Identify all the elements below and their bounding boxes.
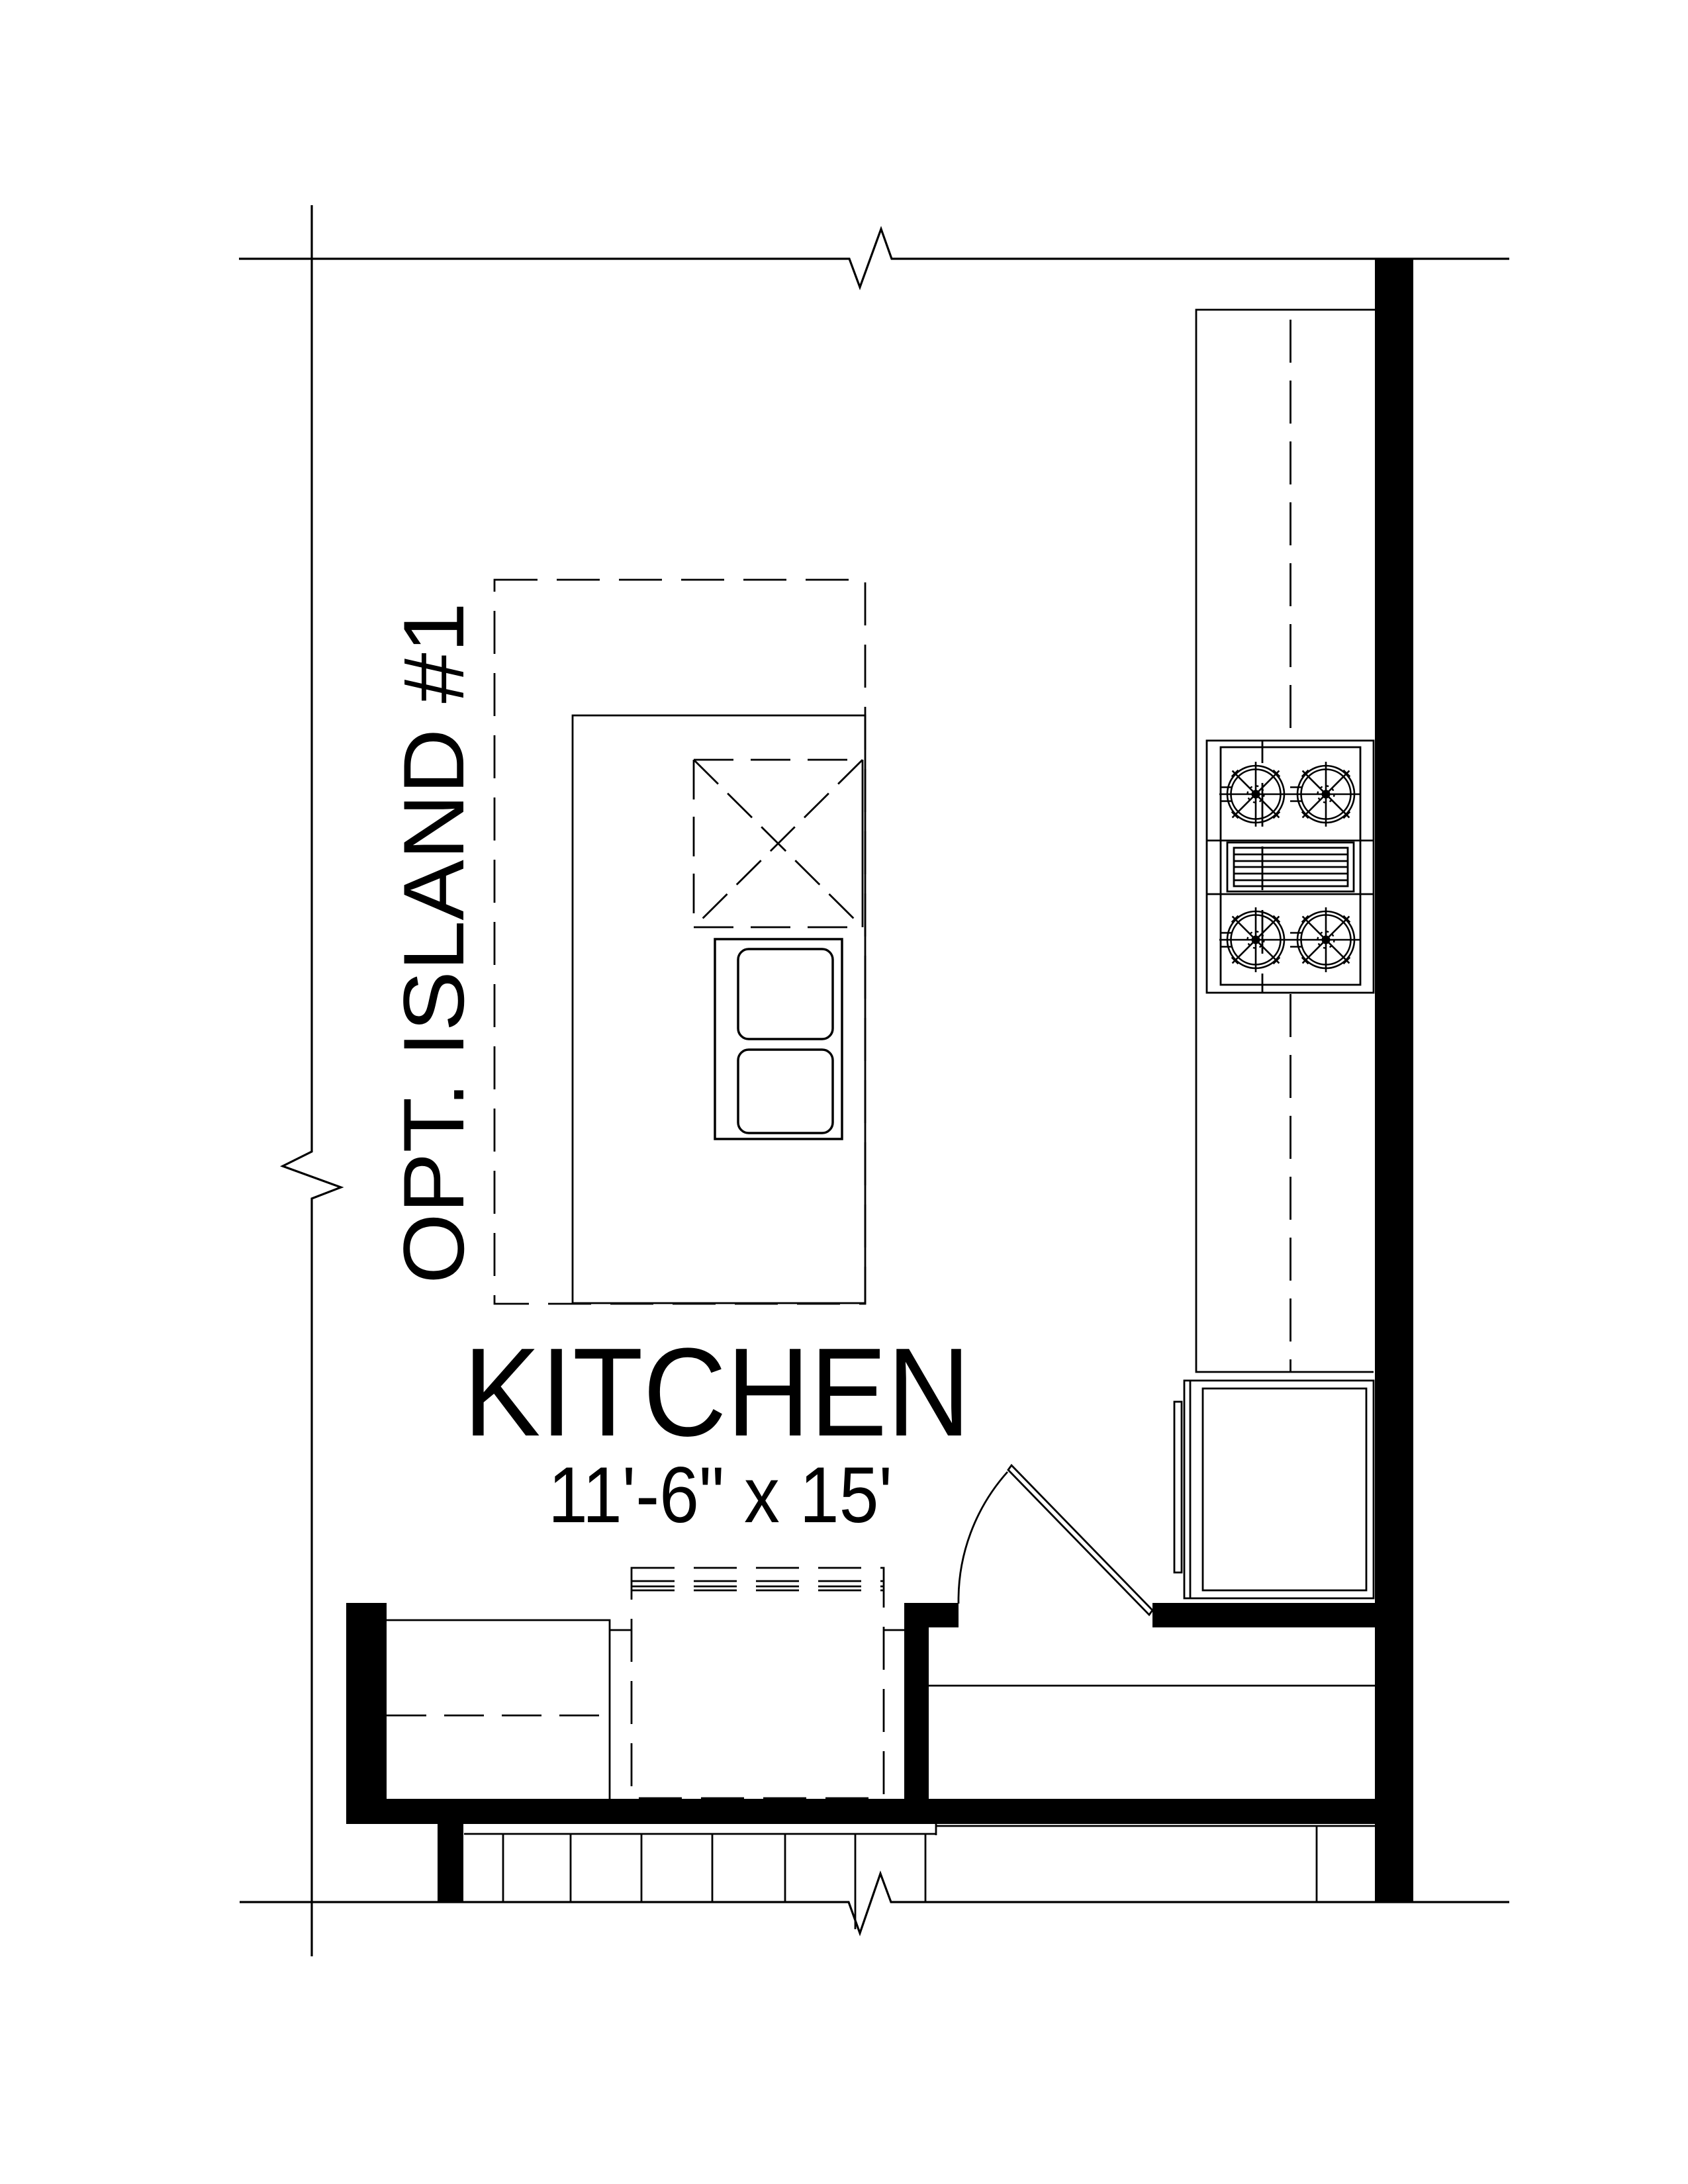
svg-text:KITCHEN: KITCHEN — [463, 1322, 970, 1463]
svg-text:11'-6" x 15': 11'-6" x 15' — [548, 1451, 892, 1539]
svg-text:OPT. ISLAND #1: OPT. ISLAND #1 — [385, 602, 482, 1284]
